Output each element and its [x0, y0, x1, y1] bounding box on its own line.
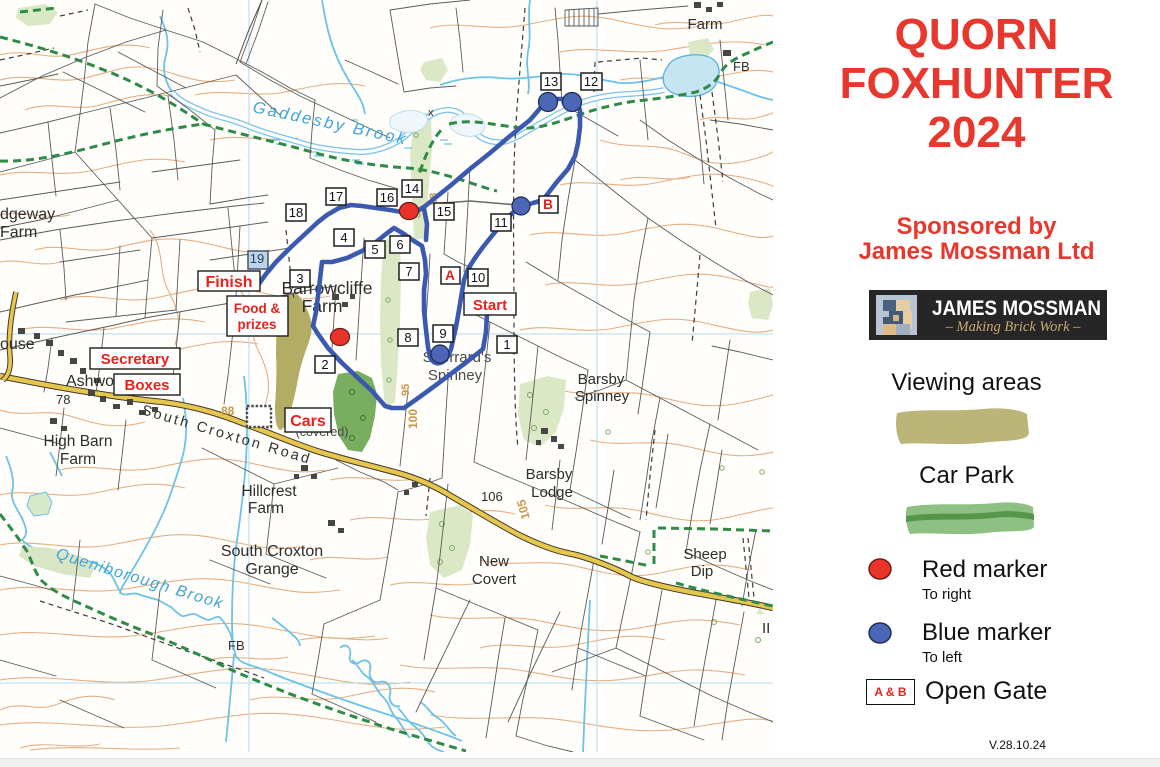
svg-text:106: 106	[481, 489, 503, 504]
svg-text:Finish: Finish	[205, 274, 252, 291]
svg-text:Start: Start	[473, 297, 507, 314]
svg-text:Boxes: Boxes	[124, 377, 169, 394]
svg-text:Spinney: Spinney	[575, 388, 630, 405]
svg-text:19: 19	[250, 251, 264, 266]
svg-text:South Croxton: South Croxton	[221, 543, 323, 560]
svg-text:Lodge: Lodge	[531, 484, 573, 501]
svg-text:14: 14	[405, 181, 419, 196]
svg-text:10: 10	[471, 270, 485, 285]
svg-text:12: 12	[584, 74, 598, 89]
svg-text:ouse: ouse	[0, 336, 35, 353]
svg-text:Farm: Farm	[688, 16, 723, 33]
svg-text:100: 100	[406, 409, 420, 429]
svg-text:FB: FB	[733, 59, 750, 74]
svg-text:A: A	[445, 268, 455, 283]
svg-text:dgeway: dgeway	[0, 206, 55, 223]
svg-text:FB: FB	[228, 638, 245, 653]
svg-text:18: 18	[289, 205, 303, 220]
svg-text:Farm: Farm	[0, 224, 37, 241]
svg-text:prizes: prizes	[237, 317, 276, 332]
svg-text:4: 4	[340, 230, 347, 245]
svg-text:New: New	[479, 553, 509, 570]
svg-text:Barsby: Barsby	[578, 371, 625, 388]
svg-text:6: 6	[396, 237, 403, 252]
svg-text:88: 88	[221, 404, 235, 418]
svg-text:3: 3	[296, 271, 303, 286]
svg-text:Barsby: Barsby	[526, 466, 573, 483]
svg-text:Farm: Farm	[60, 451, 96, 468]
svg-text:Hillcrest: Hillcrest	[241, 483, 297, 500]
svg-text:15: 15	[437, 204, 451, 219]
svg-text:1: 1	[503, 337, 510, 352]
svg-text:Farm: Farm	[248, 500, 284, 517]
svg-text:2: 2	[321, 357, 328, 372]
svg-text:5: 5	[371, 242, 378, 257]
svg-text:Secretary: Secretary	[101, 351, 170, 368]
svg-text:9: 9	[439, 326, 446, 341]
svg-text:7: 7	[405, 264, 412, 279]
svg-text:11: 11	[494, 215, 508, 230]
svg-text:High Barn: High Barn	[44, 433, 113, 450]
svg-text:x: x	[428, 107, 434, 119]
svg-text:Cars: Cars	[290, 413, 326, 430]
svg-text:Farm: Farm	[302, 296, 343, 316]
svg-text:II: II	[762, 620, 770, 637]
svg-text:78: 78	[56, 392, 70, 407]
svg-text:13: 13	[544, 74, 558, 89]
svg-text:Covert: Covert	[472, 571, 517, 588]
svg-text:Grange: Grange	[245, 561, 298, 578]
svg-text:95: 95	[400, 384, 412, 396]
svg-text:16: 16	[380, 190, 394, 205]
svg-text:17: 17	[329, 189, 343, 204]
svg-text:Dip: Dip	[691, 563, 714, 580]
svg-text:8: 8	[404, 330, 411, 345]
svg-text:Food &: Food &	[234, 301, 281, 316]
svg-text:Ashwo: Ashwo	[66, 373, 114, 390]
svg-text:Sheep: Sheep	[683, 546, 726, 563]
svg-text:B: B	[543, 197, 553, 212]
